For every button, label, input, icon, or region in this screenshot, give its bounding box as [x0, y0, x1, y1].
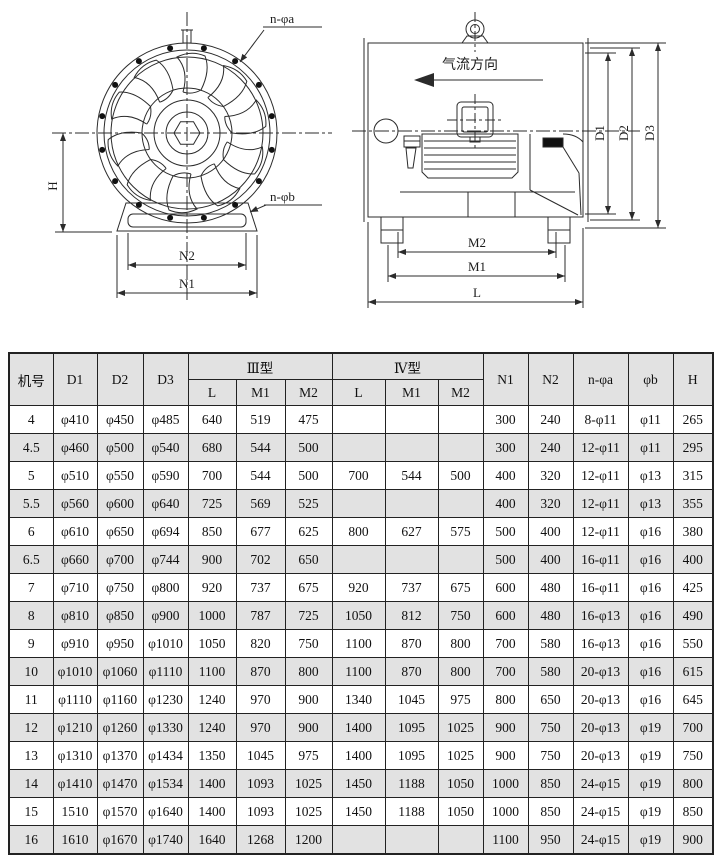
table-cell: 737 [385, 574, 438, 602]
table-cell: 627 [385, 518, 438, 546]
table-cell: φ710 [53, 574, 97, 602]
table-cell: 650 [285, 546, 332, 574]
table-cell: 16-φ11 [573, 546, 628, 574]
table-cell: 480 [528, 574, 573, 602]
table-cell: 600 [483, 574, 528, 602]
table-cell: 900 [483, 742, 528, 770]
table-cell: 1093 [236, 770, 285, 798]
table-cell: 1450 [332, 770, 385, 798]
table-cell: φ540 [143, 434, 188, 462]
table-cell: 1240 [188, 686, 236, 714]
table-cell: 500 [438, 462, 483, 490]
table-cell: 1025 [285, 770, 332, 798]
table-cell: φ744 [143, 546, 188, 574]
table-cell: 850 [528, 770, 573, 798]
table-cell: 700 [483, 630, 528, 658]
dimension-table: 机号 D1 D2 D3 Ⅲ型 Ⅳ型 N1 N2 n-φa φb H L M1 M… [8, 352, 714, 855]
col-header-type-iv: Ⅳ型 [332, 353, 483, 380]
table-cell: 1095 [385, 714, 438, 742]
table-cell: 1240 [188, 714, 236, 742]
table-cell: 15 [9, 798, 53, 826]
table-cell: 500 [285, 434, 332, 462]
table-cell: 315 [673, 462, 713, 490]
table-row: 8φ810φ850φ900100078772510508127506004801… [9, 602, 713, 630]
table-cell: 480 [528, 602, 573, 630]
col-header-iv-l: L [332, 380, 385, 406]
table-cell: φ1230 [143, 686, 188, 714]
table-cell: 1400 [188, 798, 236, 826]
table-cell: 4.5 [9, 434, 53, 462]
table-cell: 400 [528, 546, 573, 574]
table-cell: 519 [236, 406, 285, 434]
table-cell: 1400 [332, 714, 385, 742]
table-cell: 900 [483, 714, 528, 742]
table-cell: φ1434 [143, 742, 188, 770]
catalog-page: n-φa n-φb H N2 N1 [0, 0, 720, 857]
table-cell: 16-φ11 [573, 574, 628, 602]
table-cell: φ16 [628, 602, 673, 630]
table-cell: 20-φ13 [573, 742, 628, 770]
table-cell: 8 [9, 602, 53, 630]
table-cell: 1100 [332, 658, 385, 686]
table-cell: 544 [236, 462, 285, 490]
table-cell: 500 [483, 546, 528, 574]
table-cell: 500 [285, 462, 332, 490]
table-cell: φ11 [628, 406, 673, 434]
table-cell [385, 434, 438, 462]
table-cell: 870 [236, 658, 285, 686]
table-cell: 900 [285, 686, 332, 714]
table-cell: 1050 [438, 770, 483, 798]
table-cell: 320 [528, 490, 573, 518]
table-cell: φ550 [97, 462, 143, 490]
table-cell: φ13 [628, 490, 673, 518]
col-header-iii-l: L [188, 380, 236, 406]
table-cell [438, 546, 483, 574]
table-cell: 640 [188, 406, 236, 434]
table-cell: φ910 [53, 630, 97, 658]
col-header-n2: N2 [528, 353, 573, 406]
table-row: 10φ1010φ1060φ111011008708001100870800700… [9, 658, 713, 686]
table-cell: 1268 [236, 826, 285, 855]
table-cell: φ1060 [97, 658, 143, 686]
table-row: 5.5φ560φ600φ64072556952540032012-φ11φ133… [9, 490, 713, 518]
table-cell: 400 [483, 490, 528, 518]
side-label-m1: M1 [468, 259, 486, 274]
table-cell: 920 [188, 574, 236, 602]
table-cell: φ19 [628, 770, 673, 798]
table-cell: 380 [673, 518, 713, 546]
table-cell: 544 [236, 434, 285, 462]
table-cell: 1200 [285, 826, 332, 855]
col-header-iv-m2: M2 [438, 380, 483, 406]
table-cell: φ1010 [143, 630, 188, 658]
table-cell: 1025 [438, 714, 483, 742]
side-label-d2: D2 [616, 125, 631, 141]
table-row: 7φ710φ750φ80092073767592073767560048016-… [9, 574, 713, 602]
table-cell: 600 [483, 602, 528, 630]
table-cell: 12-φ11 [573, 490, 628, 518]
table-cell: 525 [285, 490, 332, 518]
col-header-iii-m1: M1 [236, 380, 285, 406]
side-label-l: L [473, 285, 481, 300]
table-cell [385, 406, 438, 434]
table-cell: 12-φ11 [573, 434, 628, 462]
table-cell: 812 [385, 602, 438, 630]
table-row: 161610φ1670φ1740164012681200110095024-φ1… [9, 826, 713, 855]
table-row: 12φ1210φ1260φ133012409709001400109510259… [9, 714, 713, 742]
table-cell: 750 [438, 602, 483, 630]
table-cell [385, 490, 438, 518]
table-cell: 1025 [285, 798, 332, 826]
col-header-iii-m2: M2 [285, 380, 332, 406]
fan-side-view [352, 12, 666, 308]
table-cell: 20-φ13 [573, 714, 628, 742]
table-cell: 240 [528, 434, 573, 462]
table-cell: 750 [528, 714, 573, 742]
table-row: 13φ1310φ1370φ143413501045975140010951025… [9, 742, 713, 770]
table-cell: 5.5 [9, 490, 53, 518]
table-cell [438, 406, 483, 434]
table-cell: φ460 [53, 434, 97, 462]
table-cell: 650 [528, 686, 573, 714]
table-cell: 300 [483, 406, 528, 434]
table-cell: φ1110 [143, 658, 188, 686]
table-cell: φ410 [53, 406, 97, 434]
table-cell: 900 [188, 546, 236, 574]
table-cell: 677 [236, 518, 285, 546]
table-cell: φ640 [143, 490, 188, 518]
table-cell: 700 [332, 462, 385, 490]
front-label-n1: N1 [179, 276, 195, 291]
table-cell: 1640 [188, 826, 236, 855]
table-cell: 500 [483, 518, 528, 546]
table-cell: 24-φ15 [573, 770, 628, 798]
table-cell: φ900 [143, 602, 188, 630]
table-header: 机号 D1 D2 D3 Ⅲ型 Ⅳ型 N1 N2 n-φa φb H L M1 M… [9, 353, 713, 406]
col-header-phi-b: φb [628, 353, 673, 406]
table-cell [438, 434, 483, 462]
table-cell: φ1110 [53, 686, 97, 714]
table-cell: φ950 [97, 630, 143, 658]
table-cell: 700 [188, 462, 236, 490]
table-cell: φ694 [143, 518, 188, 546]
table-cell: 1188 [385, 770, 438, 798]
table-cell: 800 [332, 518, 385, 546]
table-cell: 580 [528, 658, 573, 686]
table-cell: 737 [236, 574, 285, 602]
table-cell: 1095 [385, 742, 438, 770]
table-cell: 1100 [483, 826, 528, 855]
table-cell: 20-φ13 [573, 658, 628, 686]
table-cell: φ650 [97, 518, 143, 546]
table-cell: φ16 [628, 658, 673, 686]
table-cell: 700 [483, 658, 528, 686]
table-cell [438, 490, 483, 518]
table-cell: 265 [673, 406, 713, 434]
table-cell: 12-φ11 [573, 462, 628, 490]
table-cell: φ1210 [53, 714, 97, 742]
table-row: 6.5φ660φ700φ74490070265050040016-φ11φ164… [9, 546, 713, 574]
table-cell: φ1330 [143, 714, 188, 742]
table-cell: φ13 [628, 462, 673, 490]
table-cell: 300 [483, 434, 528, 462]
col-header-d1: D1 [53, 353, 97, 406]
table-cell: 16 [9, 826, 53, 855]
table-cell: 400 [528, 518, 573, 546]
table-cell: 4 [9, 406, 53, 434]
table-cell [332, 490, 385, 518]
table-row: 14φ1410φ1470φ153414001093102514501188105… [9, 770, 713, 798]
table-cell: 400 [673, 546, 713, 574]
table-cell: 9 [9, 630, 53, 658]
table-cell: φ1310 [53, 742, 97, 770]
table-cell: φ19 [628, 742, 673, 770]
table-cell [385, 546, 438, 574]
table-cell: φ1570 [97, 798, 143, 826]
table-cell: φ1370 [97, 742, 143, 770]
front-label-n2: N2 [179, 248, 195, 263]
table-cell: φ19 [628, 798, 673, 826]
table-cell: φ1670 [97, 826, 143, 855]
table-cell: 750 [528, 742, 573, 770]
table-cell: 1050 [188, 630, 236, 658]
col-header-h: H [673, 353, 713, 406]
table-cell: 24-φ15 [573, 826, 628, 855]
table-cell: φ1260 [97, 714, 143, 742]
table-cell: 970 [236, 714, 285, 742]
table-cell: 800 [438, 658, 483, 686]
table-cell: φ1534 [143, 770, 188, 798]
table-cell: 615 [673, 658, 713, 686]
col-header-n-phi-a: n-φa [573, 353, 628, 406]
table-cell: 320 [528, 462, 573, 490]
col-header-n1: N1 [483, 353, 528, 406]
table-cell: 1045 [236, 742, 285, 770]
table-cell: 850 [528, 798, 573, 826]
table-cell: 975 [438, 686, 483, 714]
table-cell: 1400 [332, 742, 385, 770]
table-cell: φ1010 [53, 658, 97, 686]
table-cell: 1025 [438, 742, 483, 770]
table-cell: φ16 [628, 574, 673, 602]
table-cell: φ610 [53, 518, 97, 546]
table-cell: 1350 [188, 742, 236, 770]
table-cell: φ19 [628, 714, 673, 742]
table-cell: 800 [285, 658, 332, 686]
table-cell: φ510 [53, 462, 97, 490]
table-cell: φ16 [628, 546, 673, 574]
table-row: 6φ610φ650φ69485067762580062757550040012-… [9, 518, 713, 546]
table-cell: 575 [438, 518, 483, 546]
table-cell: φ19 [628, 826, 673, 855]
col-header-machine-no: 机号 [9, 353, 53, 406]
table-cell: 950 [528, 826, 573, 855]
table-cell: 675 [285, 574, 332, 602]
table-cell: 6 [9, 518, 53, 546]
table-cell: 24-φ15 [573, 798, 628, 826]
table-cell: φ660 [53, 546, 97, 574]
table-cell: 14 [9, 770, 53, 798]
table-cell: 675 [438, 574, 483, 602]
table-cell: φ11 [628, 434, 673, 462]
table-cell: φ500 [97, 434, 143, 462]
side-label-d1: D1 [592, 125, 607, 141]
table-cell: φ16 [628, 686, 673, 714]
table-cell: 11 [9, 686, 53, 714]
table-cell: 240 [528, 406, 573, 434]
table-row: 9φ910φ950φ101010508207501100870800700580… [9, 630, 713, 658]
col-header-type-iii: Ⅲ型 [188, 353, 332, 380]
table-cell: 1050 [438, 798, 483, 826]
table-cell: 544 [385, 462, 438, 490]
table-cell: 645 [673, 686, 713, 714]
table-cell: φ810 [53, 602, 97, 630]
table-cell: 1050 [332, 602, 385, 630]
table-cell: 7 [9, 574, 53, 602]
table-cell: 1100 [332, 630, 385, 658]
table-cell: φ560 [53, 490, 97, 518]
table-cell: φ1160 [97, 686, 143, 714]
table-cell: φ1470 [97, 770, 143, 798]
side-label-m2: M2 [468, 235, 486, 250]
table-cell: 490 [673, 602, 713, 630]
table-cell: 702 [236, 546, 285, 574]
table-cell: 1450 [332, 798, 385, 826]
table-cell: φ1740 [143, 826, 188, 855]
table-cell: 725 [285, 602, 332, 630]
table-cell: 800 [438, 630, 483, 658]
table-cell: 569 [236, 490, 285, 518]
front-label-n-phi-b: n-φb [270, 189, 295, 204]
table-cell: φ850 [97, 602, 143, 630]
table-cell: 1400 [188, 770, 236, 798]
side-label-d3: D3 [642, 125, 657, 141]
table-cell: φ1640 [143, 798, 188, 826]
table-cell: 850 [188, 518, 236, 546]
table-cell: 750 [673, 742, 713, 770]
table-cell [332, 546, 385, 574]
table-body: 4φ410φ450φ4856405194753002408-φ11φ112654… [9, 406, 713, 855]
table-cell: 1000 [483, 798, 528, 826]
table-cell: 16-φ13 [573, 602, 628, 630]
table-cell: 820 [236, 630, 285, 658]
table-cell: 920 [332, 574, 385, 602]
table-cell: 900 [285, 714, 332, 742]
table-cell: 580 [528, 630, 573, 658]
table-cell [332, 406, 385, 434]
table-row: 4.5φ460φ500φ54068054450030024012-φ11φ112… [9, 434, 713, 462]
table-cell: φ485 [143, 406, 188, 434]
table-row: 5φ510φ550φ59070054450070054450040032012-… [9, 462, 713, 490]
table-cell: 20-φ13 [573, 686, 628, 714]
table-cell: φ700 [97, 546, 143, 574]
table-cell: 1093 [236, 798, 285, 826]
front-label-n-phi-a: n-φa [270, 11, 294, 26]
table-cell: 750 [285, 630, 332, 658]
table-cell: φ16 [628, 518, 673, 546]
table-cell: 10 [9, 658, 53, 686]
table-cell: φ600 [97, 490, 143, 518]
table-cell: 13 [9, 742, 53, 770]
col-header-d3: D3 [143, 353, 188, 406]
table-cell: 700 [673, 714, 713, 742]
table-cell: 1610 [53, 826, 97, 855]
table-cell: 1000 [188, 602, 236, 630]
table-cell: 295 [673, 434, 713, 462]
table-cell: 1340 [332, 686, 385, 714]
table-cell: 1188 [385, 798, 438, 826]
table-cell: φ750 [97, 574, 143, 602]
table-cell: 625 [285, 518, 332, 546]
table-cell: 8-φ11 [573, 406, 628, 434]
table-cell: 5 [9, 462, 53, 490]
table-cell: 1510 [53, 798, 97, 826]
table-cell: 975 [285, 742, 332, 770]
table-cell [438, 826, 483, 855]
table-cell [332, 434, 385, 462]
col-header-iv-m1: M1 [385, 380, 438, 406]
table-cell: 6.5 [9, 546, 53, 574]
table-cell: 355 [673, 490, 713, 518]
table-cell: 787 [236, 602, 285, 630]
table-cell [385, 826, 438, 855]
table-cell: 800 [483, 686, 528, 714]
table-cell: φ450 [97, 406, 143, 434]
table-row: 11φ1110φ1160φ123012409709001340104597580… [9, 686, 713, 714]
table-cell: 12 [9, 714, 53, 742]
table-cell: φ800 [143, 574, 188, 602]
table-cell: 16-φ13 [573, 630, 628, 658]
col-header-d2: D2 [97, 353, 143, 406]
table-cell: 850 [673, 798, 713, 826]
technical-drawings: n-φa n-φb H N2 N1 [0, 0, 720, 345]
table-cell: 425 [673, 574, 713, 602]
table-cell: φ590 [143, 462, 188, 490]
table-cell: 1100 [188, 658, 236, 686]
table-cell: 400 [483, 462, 528, 490]
table-cell: 725 [188, 490, 236, 518]
table-cell: 475 [285, 406, 332, 434]
table-cell: 1000 [483, 770, 528, 798]
table-cell: 550 [673, 630, 713, 658]
table-cell [332, 826, 385, 855]
table-row: 151510φ1570φ1640140010931025145011881050… [9, 798, 713, 826]
table-cell: 800 [673, 770, 713, 798]
table-cell: φ1410 [53, 770, 97, 798]
table-cell: 900 [673, 826, 713, 855]
table-cell: 12-φ11 [573, 518, 628, 546]
side-label-airflow: 气流方向 [442, 57, 498, 73]
front-label-h: H [45, 181, 60, 190]
table-cell: 870 [385, 658, 438, 686]
table-row: 4φ410φ450φ4856405194753002408-φ11φ11265 [9, 406, 713, 434]
table-cell: 1045 [385, 686, 438, 714]
table-cell: 870 [385, 630, 438, 658]
table-cell: φ16 [628, 630, 673, 658]
table-cell: 970 [236, 686, 285, 714]
table-cell: 680 [188, 434, 236, 462]
